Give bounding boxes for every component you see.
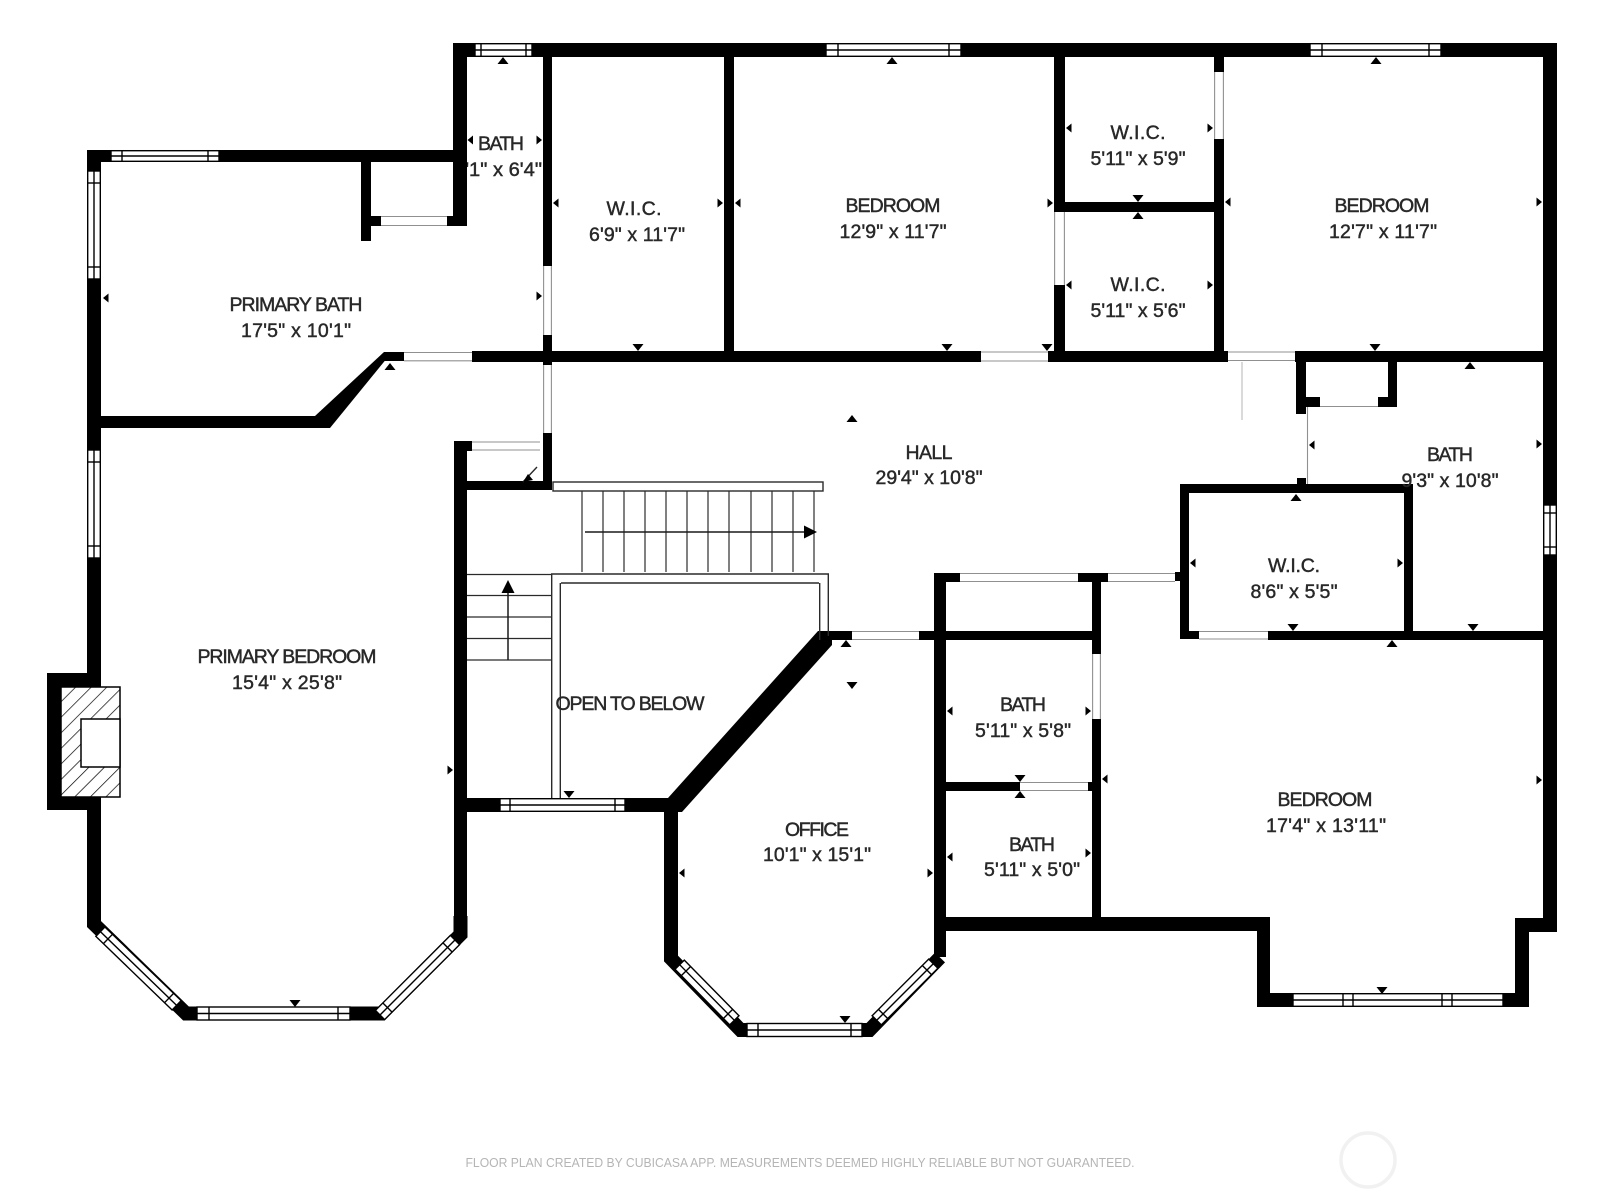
svg-text:PRIMARY BEDROOM: PRIMARY BEDROOM [198, 646, 377, 668]
svg-text:PRIMARY BATH: PRIMARY BATH [230, 294, 363, 316]
svg-text:FLOOR PLAN CREATED BY CUBICASA: FLOOR PLAN CREATED BY CUBICASA APP. MEAS… [466, 1155, 1135, 1170]
svg-text:BATH: BATH [1009, 834, 1055, 856]
svg-text:5'11" x 5'6": 5'11" x 5'6" [1091, 300, 1186, 322]
svg-text:W.I.C.: W.I.C. [607, 198, 662, 220]
svg-text:6'9" x 11'7": 6'9" x 11'7" [589, 224, 685, 246]
svg-text:BEDROOM: BEDROOM [846, 195, 941, 217]
svg-text:10'1" x 15'1": 10'1" x 15'1" [763, 844, 871, 866]
svg-text:15'4" x 25'8": 15'4" x 25'8" [232, 672, 342, 694]
svg-text:5'11" x 5'0": 5'11" x 5'0" [984, 859, 1080, 881]
svg-text:17'4" x 13'11": 17'4" x 13'11" [1266, 815, 1386, 837]
svg-text:12'7" x 11'7": 12'7" x 11'7" [1329, 221, 1437, 243]
svg-text:29'4" x 10'8": 29'4" x 10'8" [876, 467, 983, 489]
svg-text:OPEN TO BELOW: OPEN TO BELOW [556, 693, 706, 715]
svg-text:HALL: HALL [906, 442, 953, 464]
svg-text:BEDROOM: BEDROOM [1278, 789, 1373, 811]
svg-text:W.I.C.: W.I.C. [1111, 122, 1166, 144]
svg-text:BEDROOM: BEDROOM [1335, 195, 1430, 217]
svg-text:W.I.C.: W.I.C. [1268, 555, 1320, 577]
svg-text:BATH: BATH [478, 133, 524, 155]
svg-text:W.I.C.: W.I.C. [1111, 274, 1166, 296]
svg-text:17'5" x 10'1": 17'5" x 10'1" [241, 320, 351, 342]
svg-text:OFFICE: OFFICE [785, 819, 849, 841]
svg-text:BATH: BATH [1427, 444, 1473, 466]
svg-text:5'11" x 5'9": 5'11" x 5'9" [1091, 148, 1186, 170]
svg-text:5'11" x 5'8": 5'11" x 5'8" [975, 720, 1071, 742]
svg-text:12'9" x 11'7": 12'9" x 11'7" [840, 221, 947, 243]
svg-text:BATH: BATH [1000, 694, 1046, 716]
svg-text:9'3" x 10'8": 9'3" x 10'8" [1402, 470, 1499, 492]
svg-text:8'6" x 5'5": 8'6" x 5'5" [1251, 581, 1338, 603]
svg-text:8'1" x 6'4": 8'1" x 6'4" [454, 159, 542, 181]
